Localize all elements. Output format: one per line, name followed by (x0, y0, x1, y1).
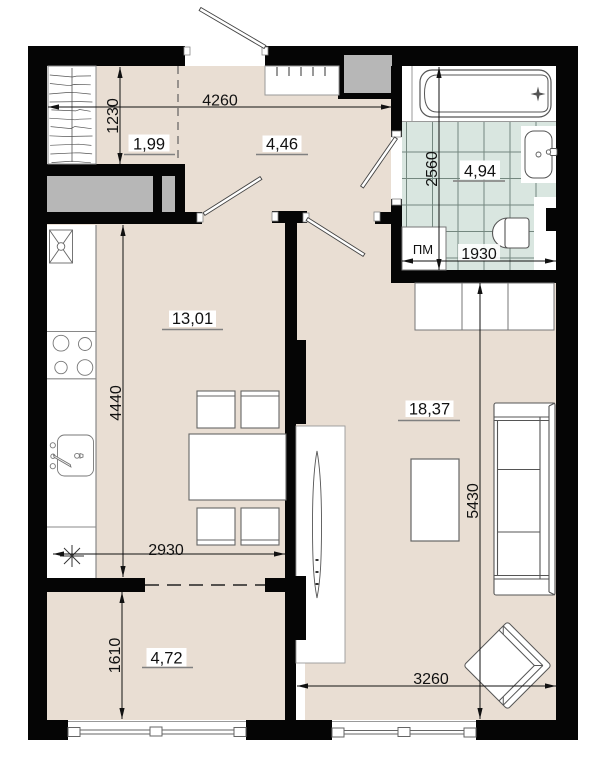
svg-text:2560: 2560 (424, 151, 441, 187)
svg-text:1930: 1930 (461, 246, 497, 263)
svg-text:5430: 5430 (465, 483, 482, 519)
svg-text:4440: 4440 (108, 385, 125, 421)
svg-text:4,72: 4,72 (150, 650, 182, 668)
svg-text:4,46: 4,46 (266, 136, 298, 154)
svg-text:2930: 2930 (148, 542, 184, 559)
svg-text:18,37: 18,37 (409, 401, 450, 419)
svg-text:1,99: 1,99 (133, 136, 165, 154)
svg-text:1610: 1610 (107, 638, 124, 674)
svg-text:13,01: 13,01 (172, 310, 213, 328)
svg-text:ПМ: ПМ (413, 242, 433, 257)
svg-text:1230: 1230 (105, 98, 122, 134)
svg-text:3260: 3260 (413, 671, 449, 688)
svg-text:4,94: 4,94 (464, 163, 496, 181)
svg-text:4260: 4260 (202, 93, 238, 110)
